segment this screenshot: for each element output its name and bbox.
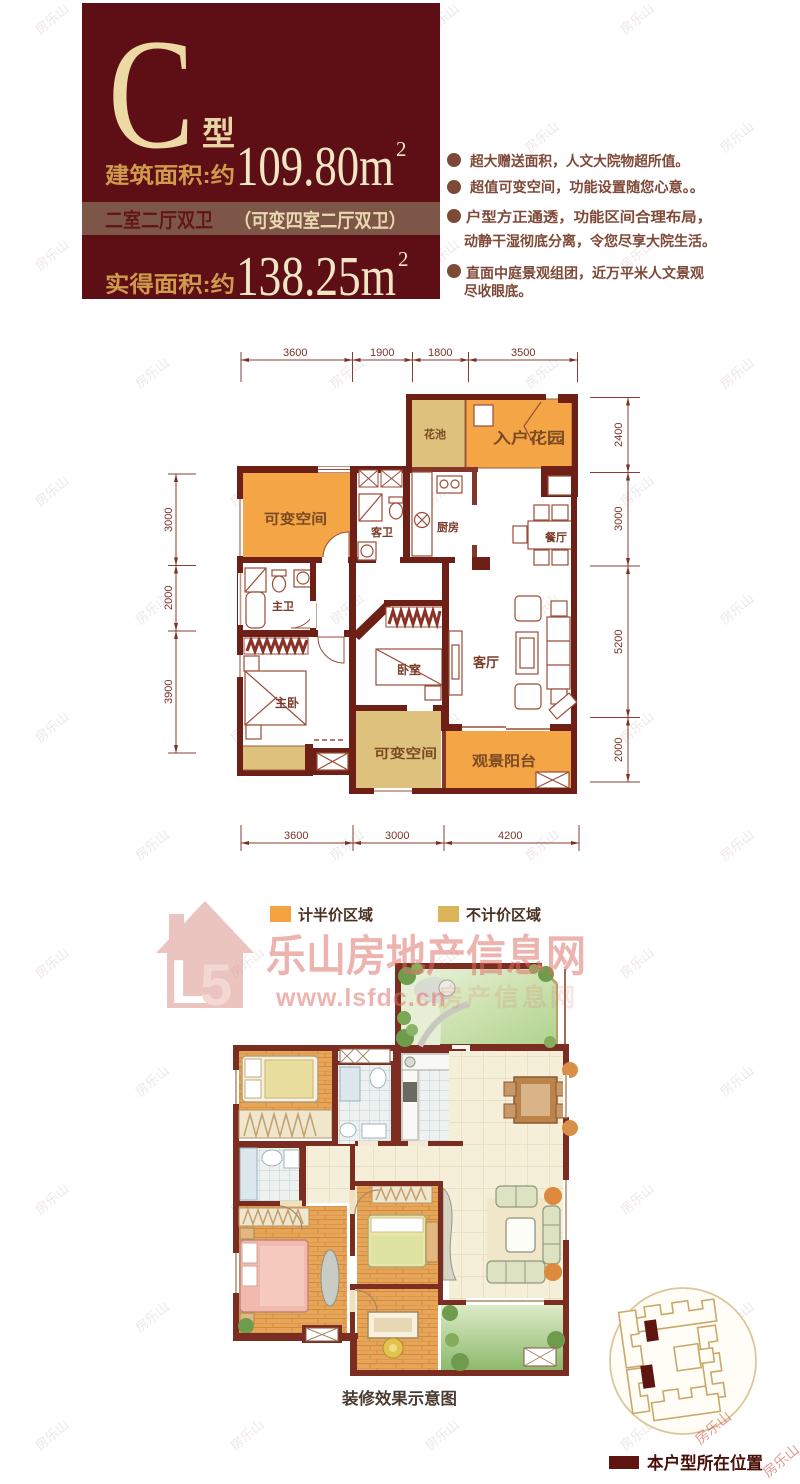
svg-text:2: 2 bbox=[398, 247, 409, 271]
svg-text:房乐山: 房乐山 bbox=[32, 1417, 72, 1454]
svg-text:C: C bbox=[108, 7, 194, 182]
svg-text:乐山房地产信息网: 乐山房地产信息网 bbox=[266, 933, 586, 981]
svg-text:装修效果示意图: 装修效果示意图 bbox=[341, 1389, 457, 1408]
svg-text:138.25m: 138.25m bbox=[236, 246, 396, 308]
svg-text:房乐山: 房乐山 bbox=[132, 355, 172, 392]
svg-text:房乐山: 房乐山 bbox=[760, 1441, 800, 1480]
svg-text:本户型所在位置: 本户型所在位置 bbox=[647, 1453, 763, 1473]
svg-text:房乐山: 房乐山 bbox=[422, 1417, 462, 1454]
svg-text:实得面积:约: 实得面积:约 bbox=[105, 272, 235, 297]
svg-text:超大赠送面积，人文大院物超所值。: 超大赠送面积，人文大院物超所值。 bbox=[469, 153, 689, 169]
svg-text:厨房: 厨房 bbox=[437, 520, 459, 534]
svg-text:房乐山: 房乐山 bbox=[522, 827, 562, 864]
svg-text:计半价区域: 计半价区域 bbox=[298, 906, 373, 924]
svg-text:3000: 3000 bbox=[385, 830, 409, 842]
svg-text:观景阳台: 观景阳台 bbox=[472, 753, 536, 769]
svg-text:房乐山: 房乐山 bbox=[32, 237, 72, 274]
svg-text:房乐山: 房乐山 bbox=[227, 1417, 267, 1454]
svg-text:3900: 3900 bbox=[163, 680, 175, 704]
svg-text:房乐山: 房乐山 bbox=[327, 827, 367, 864]
svg-text:4200: 4200 bbox=[498, 830, 522, 842]
svg-text:房乐山: 房乐山 bbox=[717, 591, 757, 628]
svg-text:2400: 2400 bbox=[613, 423, 625, 447]
svg-text:可变空间: 可变空间 bbox=[374, 746, 437, 761]
svg-text:1800: 1800 bbox=[428, 347, 452, 359]
svg-text:直面中庭景观组团，近万平米人文景观: 直面中庭景观组团，近万平米人文景观 bbox=[466, 265, 704, 281]
svg-text:房乐山: 房乐山 bbox=[132, 1299, 172, 1336]
svg-text:可变空间: 可变空间 bbox=[264, 511, 327, 527]
svg-text:不计价区域: 不计价区域 bbox=[466, 906, 541, 924]
svg-text:3000: 3000 bbox=[613, 507, 625, 531]
svg-text:客厅: 客厅 bbox=[473, 655, 499, 670]
svg-text:房乐山: 房乐山 bbox=[32, 473, 72, 510]
svg-text:动静干湿彻底分离，令您尽享大院生活。: 动静干湿彻底分离，令您尽享大院生活。 bbox=[464, 233, 716, 249]
svg-text:3600: 3600 bbox=[283, 347, 307, 359]
svg-text:客卫: 客卫 bbox=[370, 525, 393, 539]
svg-text:花池: 花池 bbox=[424, 427, 446, 441]
svg-text:主卧: 主卧 bbox=[275, 695, 299, 710]
svg-text:户型方正通透，功能区间合理布局，: 户型方正通透，功能区间合理布局， bbox=[466, 209, 712, 225]
svg-text:房乐山: 房乐山 bbox=[617, 1181, 657, 1218]
svg-text:www.lsfdc.cn: www.lsfdc.cn bbox=[275, 984, 447, 1012]
svg-text:超值可变空间，功能设置随您心意。。: 超值可变空间，功能设置随您心意。。 bbox=[469, 179, 704, 195]
svg-text:房乐山: 房乐山 bbox=[717, 827, 757, 864]
svg-text:房乐山: 房乐山 bbox=[32, 1181, 72, 1218]
svg-text:房乐山: 房乐山 bbox=[32, 709, 72, 746]
svg-text:3600: 3600 bbox=[284, 830, 308, 842]
svg-text:卧室: 卧室 bbox=[397, 662, 421, 677]
svg-text:房乐山: 房乐山 bbox=[717, 119, 757, 156]
svg-text:1900: 1900 bbox=[370, 347, 394, 359]
svg-text:2000: 2000 bbox=[613, 738, 625, 762]
svg-text:109.80m: 109.80m bbox=[236, 136, 394, 198]
svg-text:房乐山: 房乐山 bbox=[717, 1063, 757, 1100]
svg-text:房乐山: 房乐山 bbox=[717, 355, 757, 392]
svg-text:3500: 3500 bbox=[511, 347, 535, 359]
svg-text:房乐山: 房乐山 bbox=[132, 827, 172, 864]
svg-text:二室二厅双卫: 二室二厅双卫 bbox=[105, 208, 213, 232]
svg-text:房乐山: 房乐山 bbox=[617, 945, 657, 982]
svg-text:房乐山: 房乐山 bbox=[32, 1, 72, 38]
svg-text:房乐山: 房乐山 bbox=[617, 1, 657, 38]
svg-text:房产信息网: 房产信息网 bbox=[438, 983, 578, 1012]
svg-text:尽收眼底。: 尽收眼底。 bbox=[464, 283, 532, 299]
svg-text:入户花园: 入户花园 bbox=[493, 429, 565, 447]
svg-text:型: 型 bbox=[202, 116, 235, 153]
svg-text:建筑面积:约: 建筑面积:约 bbox=[105, 163, 235, 188]
svg-text:房乐山: 房乐山 bbox=[617, 473, 657, 510]
svg-text:房乐山: 房乐山 bbox=[32, 945, 72, 982]
svg-text:房乐山: 房乐山 bbox=[327, 591, 367, 628]
svg-text:5200: 5200 bbox=[613, 630, 625, 654]
svg-text:餐厅: 餐厅 bbox=[544, 530, 567, 544]
svg-text:主卫: 主卫 bbox=[272, 599, 294, 613]
svg-text:2: 2 bbox=[396, 137, 407, 161]
svg-text:房乐山: 房乐山 bbox=[522, 119, 562, 156]
svg-text:（可变四室二厅双卫）: （可变四室二厅双卫） bbox=[234, 209, 406, 232]
svg-text:房乐山: 房乐山 bbox=[132, 1063, 172, 1100]
svg-text:5: 5 bbox=[200, 953, 232, 1018]
svg-text:3000: 3000 bbox=[163, 508, 175, 532]
svg-text:2000: 2000 bbox=[163, 586, 175, 610]
